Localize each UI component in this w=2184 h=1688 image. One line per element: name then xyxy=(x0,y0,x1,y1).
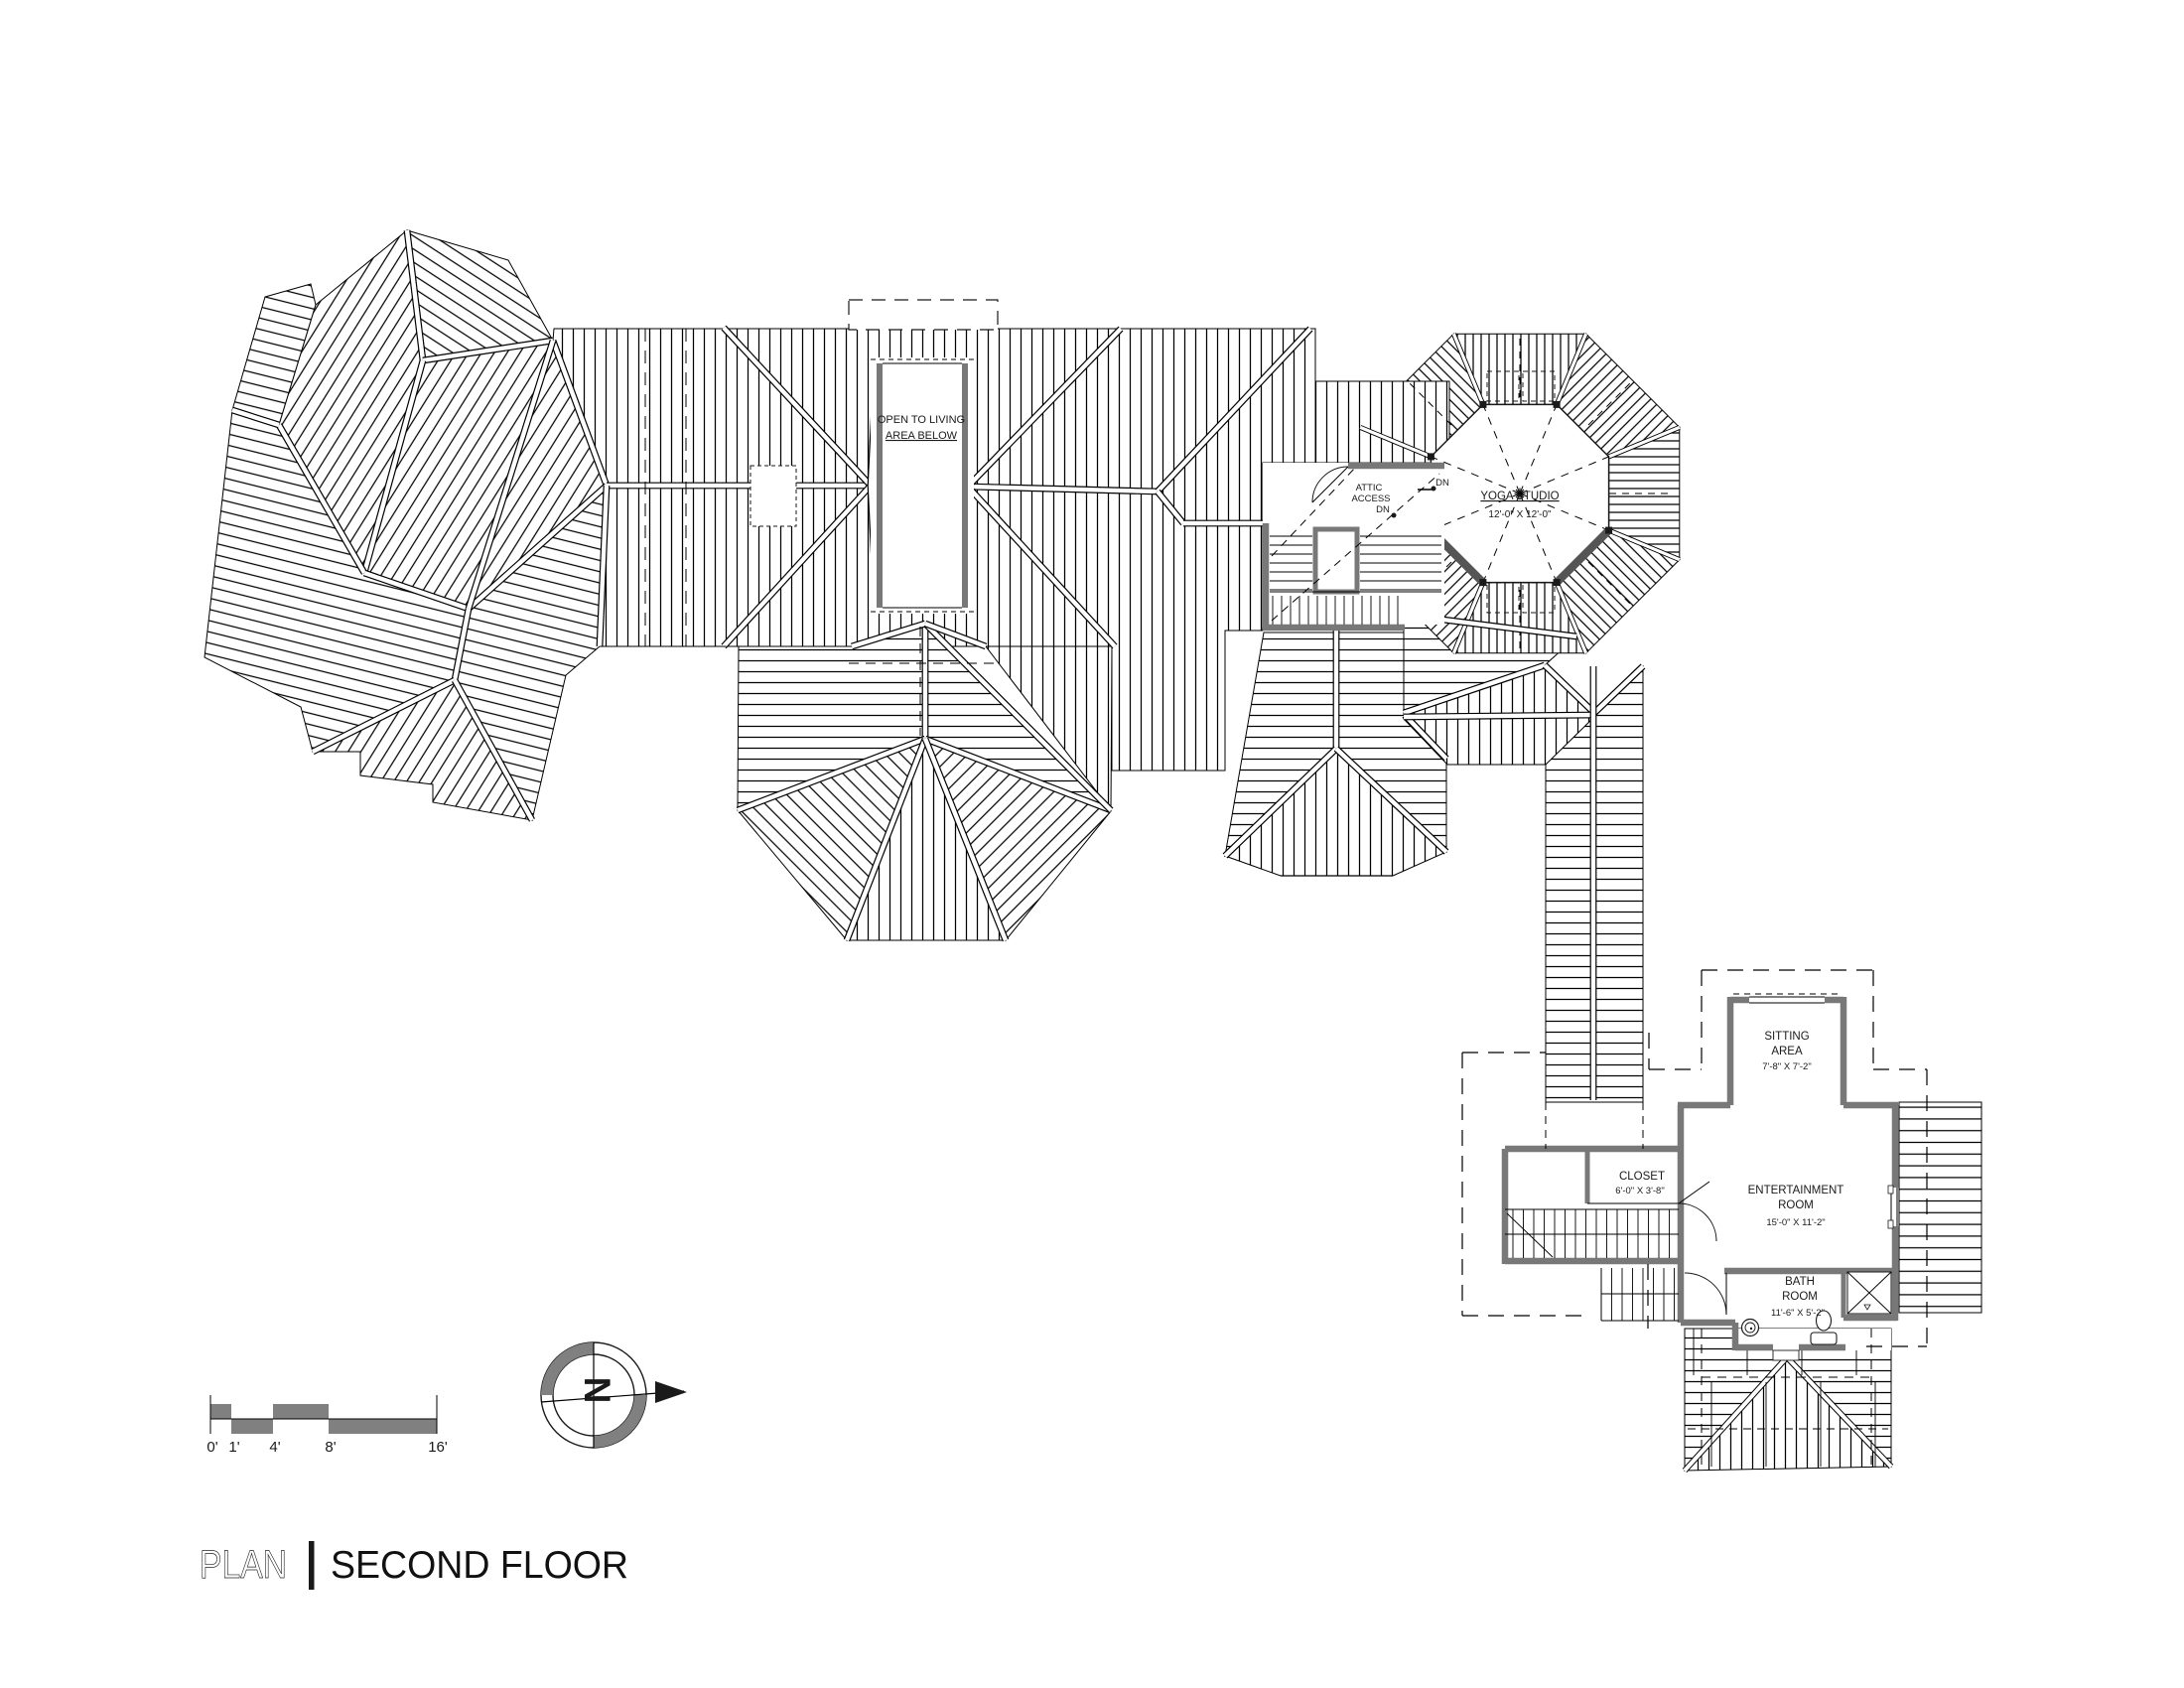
svg-text:8': 8' xyxy=(325,1439,336,1456)
svg-text:ROOM: ROOM xyxy=(1778,1199,1814,1211)
svg-text:11'-6" X 5'-2": 11'-6" X 5'-2" xyxy=(1771,1308,1825,1319)
svg-text:PLAN: PLAN xyxy=(200,1543,287,1587)
svg-text:6'-0" X 3'-8": 6'-0" X 3'-8" xyxy=(1615,1186,1664,1196)
svg-text:DN: DN xyxy=(1376,504,1390,515)
svg-text:DN: DN xyxy=(1435,478,1449,489)
svg-text:ENTERTAINMENT: ENTERTAINMENT xyxy=(1748,1185,1844,1196)
svg-text:7'-8" X 7'-2": 7'-8" X 7'-2" xyxy=(1762,1061,1811,1072)
svg-text:12'-0" X 12'-0": 12'-0" X 12'-0" xyxy=(1488,509,1552,520)
svg-text:4': 4' xyxy=(269,1439,280,1456)
svg-text:OPEN TO LIVING: OPEN TO LIVING xyxy=(878,414,965,426)
svg-text:SECOND FLOOR: SECOND FLOOR xyxy=(331,1544,628,1587)
svg-text:1': 1' xyxy=(228,1439,239,1456)
svg-text:0': 0' xyxy=(206,1439,217,1456)
svg-text:BATH: BATH xyxy=(1785,1276,1815,1288)
svg-text:16': 16' xyxy=(428,1439,448,1456)
svg-text:YOGA STUDIO: YOGA STUDIO xyxy=(1480,491,1559,502)
svg-text:CLOSET: CLOSET xyxy=(1619,1171,1665,1183)
svg-text:ATTIC: ATTIC xyxy=(1356,483,1383,493)
svg-text:SITTING: SITTING xyxy=(1764,1031,1809,1043)
svg-text:15'-0" X 11'-2": 15'-0" X 11'-2" xyxy=(1766,1217,1825,1228)
svg-text:AREA BELOW: AREA BELOW xyxy=(886,430,958,442)
svg-text:N: N xyxy=(577,1377,617,1404)
svg-text:ROOM: ROOM xyxy=(1782,1291,1818,1303)
svg-text:AREA: AREA xyxy=(1771,1046,1803,1057)
svg-text:ACCESS: ACCESS xyxy=(1351,493,1390,504)
